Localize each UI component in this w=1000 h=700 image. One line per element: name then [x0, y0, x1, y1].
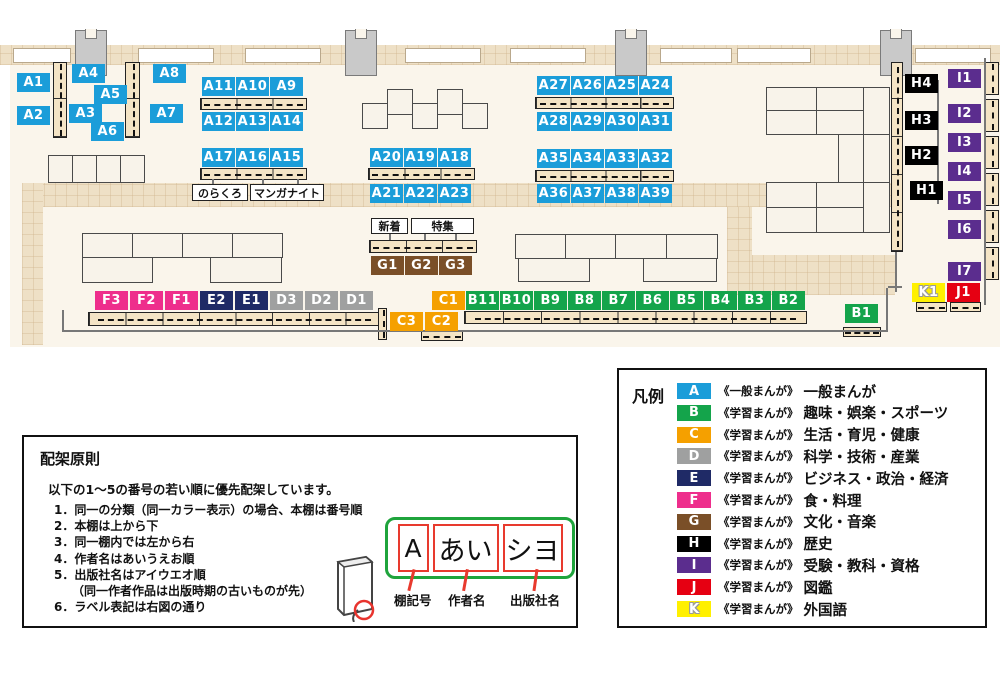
legend-category: 文化・音楽: [804, 511, 877, 532]
map-chip-F1: F1: [165, 291, 198, 310]
map-chip-B3: B3: [738, 291, 771, 310]
map-chip-G2: G2: [405, 256, 438, 275]
reading-table: [210, 257, 282, 283]
map-chip-A18: A18: [438, 148, 471, 167]
caption-shelf-code: 棚記号: [394, 590, 432, 609]
legend-category: 趣味・娯楽・スポーツ: [804, 402, 949, 423]
legend-bracket: 《学習まんが》: [718, 557, 799, 573]
walkway: [752, 255, 895, 295]
bookshelf: [369, 240, 477, 253]
map-chip-A15: A15: [270, 148, 303, 167]
reading-table: [666, 234, 718, 259]
caption-publisher: 出版社名: [510, 590, 560, 609]
legend-row-K: K《学習まんが》外国語: [677, 600, 847, 618]
map-chip-I6: I6: [948, 220, 981, 239]
legend-bracket: 《学習まんが》: [718, 601, 799, 617]
map-chip-D3: D3: [270, 291, 303, 310]
wall-window: [138, 48, 214, 63]
bookshelf: [985, 247, 999, 280]
legend-category: 生活・育児・健康: [804, 424, 920, 445]
reading-table: [437, 89, 463, 115]
map-chip-A37: A37: [571, 184, 604, 203]
walkway: [727, 207, 752, 295]
reading-table: [816, 207, 864, 233]
bookshelf: [985, 99, 999, 132]
bookshelf-dash: [98, 319, 372, 321]
bookshelf-dash: [918, 307, 945, 309]
map-chip-B10: B10: [500, 291, 533, 310]
map-chip-D1: D1: [340, 291, 373, 310]
legend-category: 歴史: [804, 533, 833, 554]
bookshelf-dash: [133, 64, 135, 135]
legend-swatch-C: C: [677, 427, 711, 443]
wall-window: [245, 48, 321, 63]
bookshelf-dash: [992, 212, 994, 242]
reading-table: [132, 233, 183, 258]
pillar: [345, 30, 377, 76]
map-note: マンガナイト: [250, 184, 324, 201]
bookshelf-dash: [60, 64, 62, 135]
map-chip-A30: A30: [605, 112, 638, 131]
wall-window: [510, 48, 586, 63]
legend-swatch-K: K: [677, 601, 711, 617]
map-chip-D2: D2: [305, 291, 338, 310]
reading-table: [362, 103, 388, 129]
legend-category: 外国語: [804, 599, 848, 620]
reading-table: [838, 134, 864, 183]
map-chip-A33: A33: [605, 149, 638, 168]
caption-author: 作者名: [448, 590, 486, 609]
reading-table: [387, 89, 413, 115]
map-chip-A5: A5: [94, 85, 127, 104]
map-chip-A6: A6: [91, 122, 124, 141]
legend-row-E: E《学習まんが》ビジネス・政治・経済: [677, 469, 949, 487]
bookshelf: [378, 308, 387, 340]
wall-line: [62, 330, 886, 332]
legend-category: 食・料理: [804, 490, 862, 511]
map-chip-A13: A13: [236, 112, 269, 131]
map-chip-A36: A36: [537, 184, 570, 203]
map-chip-A28: A28: [537, 112, 570, 131]
map-chip-C2: C2: [425, 312, 458, 331]
bookshelf: [200, 168, 307, 180]
bookshelf: [368, 168, 475, 180]
wall-line: [455, 234, 457, 240]
map-chip-A29: A29: [571, 112, 604, 131]
reading-table: [766, 207, 817, 233]
map-chip-I2: I2: [948, 104, 981, 123]
legend-category: 科学・技術・産業: [804, 446, 920, 467]
wall-line: [895, 252, 897, 292]
bookshelf-dash: [475, 318, 796, 320]
pillar-notch: [890, 29, 902, 39]
map-chip-I7: I7: [948, 262, 981, 281]
map-chip-A3: A3: [69, 104, 102, 123]
floor-map: A1A2A4A5A3A6A8A7A11A10A9A12A13A14A17A16A…: [0, 0, 1000, 700]
pillar: [615, 30, 647, 76]
wall-window: [13, 48, 71, 63]
reading-table: [120, 155, 145, 183]
legend-bracket: 《一般まんが》: [718, 383, 799, 399]
bookshelf: [464, 311, 807, 324]
map-chip-I4: I4: [948, 162, 981, 181]
reading-table: [96, 155, 121, 183]
map-chip-E2: E2: [200, 291, 233, 310]
bookshelf: [985, 62, 999, 95]
bookshelf-dash: [373, 247, 473, 249]
bookshelf: [535, 170, 674, 182]
map-note: 特集: [411, 218, 474, 234]
principles-item: （同一作者作品は出版時期の古いものが先）: [54, 582, 312, 599]
wall-window: [405, 48, 481, 63]
legend-swatch-H: H: [677, 536, 711, 552]
map-chip-F3: F3: [95, 291, 128, 310]
bookshelf-dash: [952, 307, 979, 309]
legend-bracket: 《学習まんが》: [718, 448, 799, 464]
legend-swatch-A: A: [677, 383, 711, 399]
wall-line: [389, 234, 391, 240]
bookshelf: [88, 312, 381, 326]
wall-window: [915, 48, 991, 63]
reading-table: [48, 155, 73, 183]
legend-row-B: B《学習まんが》趣味・娯楽・スポーツ: [677, 404, 948, 422]
map-chip-A23: A23: [438, 184, 471, 203]
reading-table: [82, 257, 153, 283]
reading-table: [766, 87, 817, 111]
legend-category: 一般まんが: [804, 381, 877, 402]
reading-table: [863, 182, 890, 233]
spine-label-author: あい: [433, 524, 499, 572]
map-chip-E1: E1: [235, 291, 268, 310]
principles-item: 1．同一の分類（同一カラー表示）の場合、本棚は番号順: [54, 501, 362, 518]
spine-label-publisher: シヨ: [503, 524, 563, 572]
map-chip-B7: B7: [602, 291, 635, 310]
reading-table: [863, 134, 890, 183]
map-chip-A39: A39: [639, 184, 672, 203]
map-chip-C1: C1: [432, 291, 465, 310]
map-chip-A25: A25: [605, 76, 638, 95]
map-note: のらくろ: [192, 184, 248, 201]
map-chip-A38: A38: [605, 184, 638, 203]
map-chip-A14: A14: [270, 112, 303, 131]
map-chip-H3: H3: [905, 111, 938, 130]
map-chip-I1: I1: [948, 69, 981, 88]
map-chip-A22: A22: [404, 184, 437, 203]
legend-row-F: F《学習まんが》食・料理: [677, 491, 862, 509]
map-chip-H2: H2: [905, 146, 938, 165]
reading-table: [816, 87, 864, 111]
wall-window: [660, 48, 732, 63]
reading-table: [766, 110, 817, 135]
bookshelf-dash: [845, 332, 879, 334]
map-chip-C3: C3: [390, 312, 423, 331]
map-chip-K1: K1: [912, 283, 945, 302]
map-chip-A12: A12: [202, 112, 235, 131]
bookshelf-dash: [423, 336, 461, 338]
reading-table: [766, 182, 817, 208]
legend-swatch-G: G: [677, 514, 711, 530]
bookshelf-dash: [540, 176, 669, 178]
principles-item: 3．同一棚内では左から右: [54, 533, 194, 550]
reading-table: [518, 258, 590, 282]
map-chip-A24: A24: [639, 76, 672, 95]
bookshelf: [535, 97, 674, 109]
legend-rows: A《一般まんが》一般まんがB《学習まんが》趣味・娯楽・スポーツC《学習まんが》生…: [619, 370, 989, 630]
map-chip-A4: A4: [72, 64, 105, 83]
bookshelf: [421, 331, 463, 341]
map-chip-H4: H4: [905, 74, 938, 93]
bookshelf-dash: [383, 310, 385, 339]
reading-table: [816, 182, 864, 208]
map-chip-G1: G1: [371, 256, 404, 275]
map-chip-A20: A20: [370, 148, 403, 167]
legend-panel: 凡例 A《一般まんが》一般まんがB《学習まんが》趣味・娯楽・スポーツC《学習まん…: [617, 368, 987, 628]
map-chip-A8: A8: [153, 64, 186, 83]
wall-line: [984, 58, 986, 305]
map-chip-B11: B11: [466, 291, 499, 310]
map-chip-A1: A1: [17, 73, 50, 92]
principles-item: 5．出版社名はアイウエオ順: [54, 566, 206, 583]
legend-row-G: G《学習まんが》文化・音楽: [677, 513, 876, 531]
map-chip-A19: A19: [404, 148, 437, 167]
reading-table: [816, 110, 864, 135]
legend-row-I: I《学習まんが》受験・教科・資格: [677, 556, 920, 574]
bookshelf-dash: [992, 249, 994, 279]
map-chip-B5: B5: [670, 291, 703, 310]
bookshelf-dash: [204, 174, 303, 176]
reading-table: [232, 233, 283, 258]
bookshelf: [53, 62, 67, 138]
legend-row-D: D《学習まんが》科学・技術・産業: [677, 447, 920, 465]
legend-bracket: 《学習まんが》: [718, 427, 799, 443]
bookshelf-dash: [540, 103, 669, 105]
bookshelf-dash: [992, 101, 994, 131]
map-chip-A26: A26: [571, 76, 604, 95]
legend-category: 受験・教科・資格: [804, 555, 920, 576]
bookshelf: [200, 98, 307, 110]
bookshelf-dash: [372, 174, 471, 176]
principles-item: 2．本棚は上から下: [54, 517, 158, 534]
map-chip-F2: F2: [130, 291, 163, 310]
map-chip-A17: A17: [202, 148, 235, 167]
principles-item: 4．作者名はあいうえお順: [54, 550, 194, 567]
legend-swatch-D: D: [677, 448, 711, 464]
reading-table: [412, 103, 438, 129]
map-chip-A27: A27: [537, 76, 570, 95]
legend-bracket: 《学習まんが》: [718, 514, 799, 530]
map-chip-A31: A31: [639, 112, 672, 131]
map-chip-A35: A35: [537, 149, 570, 168]
bookshelf-dash: [204, 104, 303, 106]
map-chip-B2: B2: [772, 291, 805, 310]
map-chip-A21: A21: [370, 184, 403, 203]
map-chip-B1: B1: [845, 304, 878, 323]
legend-bracket: 《学習まんが》: [718, 579, 799, 595]
wall-window: [737, 48, 811, 63]
map-chip-B6: B6: [636, 291, 669, 310]
legend-swatch-E: E: [677, 470, 711, 486]
spine-label-shelf-code: A: [398, 524, 429, 572]
map-chip-A32: A32: [639, 149, 672, 168]
bookshelf-dash: [897, 67, 899, 248]
bookshelf-dash: [992, 175, 994, 205]
reading-table: [515, 234, 566, 259]
legend-bracket: 《学習まんが》: [718, 470, 799, 486]
bookshelf: [985, 210, 999, 243]
reading-table: [863, 87, 890, 135]
map-chip-A10: A10: [236, 77, 269, 96]
reading-table: [462, 103, 488, 129]
bookshelf: [950, 302, 981, 312]
legend-swatch-I: I: [677, 557, 711, 573]
book-icon: [328, 548, 384, 622]
bookshelf: [891, 62, 903, 252]
bookshelf-dash: [992, 64, 994, 94]
map-chip-H1: H1: [910, 181, 943, 200]
legend-category: 図鑑: [804, 577, 833, 598]
legend-swatch-J: J: [677, 579, 711, 595]
bookshelf: [125, 62, 140, 138]
reading-table: [72, 155, 97, 183]
reading-table: [615, 234, 667, 259]
pillar-notch: [625, 29, 637, 39]
walkway: [22, 183, 43, 345]
wall-line: [424, 234, 426, 240]
legend-swatch-F: F: [677, 492, 711, 508]
map-chip-A34: A34: [571, 149, 604, 168]
map-chip-I3: I3: [948, 133, 981, 152]
map-chip-A2: A2: [17, 106, 50, 125]
legend-category: ビジネス・政治・経済: [804, 468, 949, 489]
map-chip-B8: B8: [568, 291, 601, 310]
map-chip-A9: A9: [270, 77, 303, 96]
bookshelf: [843, 327, 881, 337]
reading-table: [182, 233, 233, 258]
legend-row-J: J《学習まんが》図鑑: [677, 578, 833, 596]
wall-line: [62, 310, 64, 332]
bookshelf: [916, 302, 947, 312]
map-chip-A16: A16: [236, 148, 269, 167]
reading-table: [82, 233, 133, 258]
map-chip-B4: B4: [704, 291, 737, 310]
map-note: 新着: [371, 218, 408, 234]
principles-item: 6．ラベル表記は右図の通り: [54, 598, 206, 615]
map-chip-J1: J1: [947, 283, 980, 302]
legend-row-A: A《一般まんが》一般まんが: [677, 382, 876, 400]
map-chip-I5: I5: [948, 191, 981, 210]
legend-row-C: C《学習まんが》生活・育児・健康: [677, 426, 920, 444]
pillar-notch: [355, 29, 367, 39]
map-chip-A7: A7: [150, 104, 183, 123]
map-chip-A11: A11: [202, 77, 235, 96]
legend-bracket: 《学習まんが》: [718, 492, 799, 508]
bookshelf: [985, 136, 999, 169]
bookshelf: [985, 173, 999, 206]
reading-table: [643, 258, 717, 282]
legend-swatch-B: B: [677, 405, 711, 421]
legend-bracket: 《学習まんが》: [718, 536, 799, 552]
pillar-notch: [85, 29, 97, 39]
legend-bracket: 《学習まんが》: [718, 405, 799, 421]
legend-row-H: H《学習まんが》歴史: [677, 535, 833, 553]
wall-line: [886, 288, 888, 332]
map-chip-B9: B9: [534, 291, 567, 310]
bookshelf-dash: [992, 138, 994, 168]
reading-table: [565, 234, 616, 259]
map-chip-G3: G3: [439, 256, 472, 275]
